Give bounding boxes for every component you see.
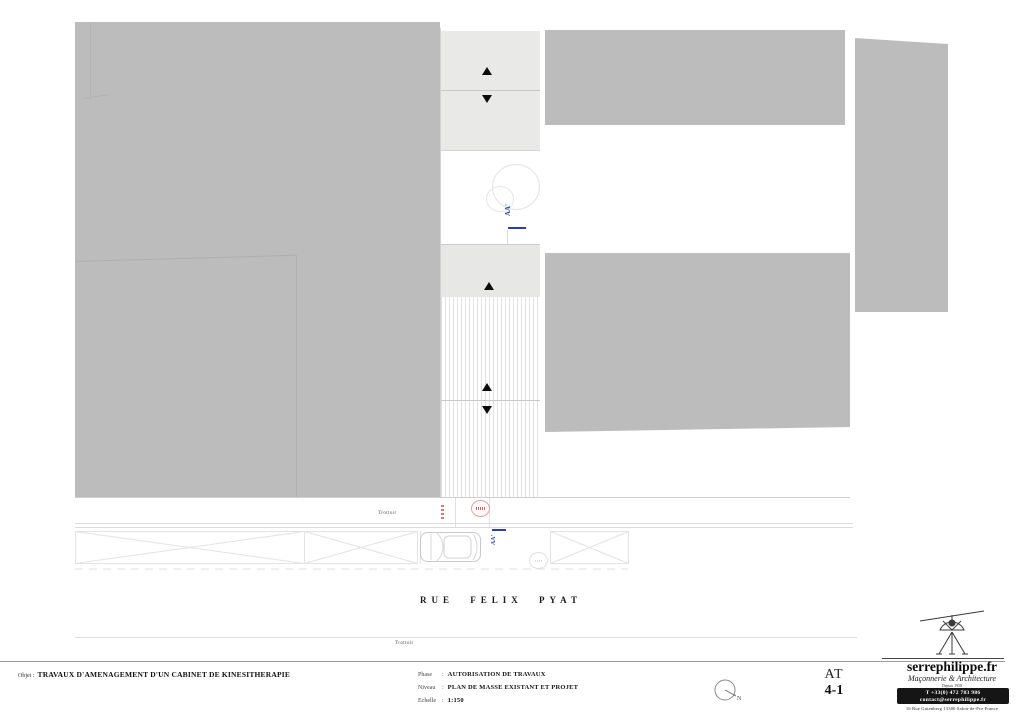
building-mass-left [75,22,440,498]
building-mass-right-bottom [545,253,850,432]
north-label: N [737,696,742,702]
building-mass-right-column [855,38,948,312]
niveau-label: Niveau [418,685,442,691]
niveau-row: Niveau : PLAN DE MASSE EXISTANT ET PROJE… [418,684,578,691]
brand-phone: T +33(0) 472 783 986 [926,690,981,696]
titleblock-separator-line [0,661,1005,662]
slope-arrow-down-icon [482,95,492,103]
phase-value: AUTORISATION DE TRAVAUX [448,671,546,678]
objet-value: TRAVAUX D'AMENAGEMENT D'UN CABINET DE KI… [38,670,291,679]
drawing-sheet: AA' Trottoir [0,0,1024,723]
roof-panel-1 [441,31,540,91]
brand-website: serrephilippe.fr [872,659,1024,675]
phase-colon: : [442,672,444,678]
slope-arrow-up-icon [482,383,492,391]
car-icon [421,533,481,562]
sheet-number: 4-1 [818,683,850,699]
section-cut-line [492,529,506,531]
phase-label: Phase [418,672,442,678]
yard-divider-line [441,400,540,401]
section-marker-label: AA' [491,532,497,548]
survey-point [529,552,548,569]
theodolite-logo-icon [912,606,992,658]
objet-label: Objet : [18,673,35,679]
building-mass-right-top [545,30,845,125]
phase-row: Phase : AUTORISATION DE TRAVAUX [418,671,546,678]
survey-point-red [471,500,490,517]
parcel-line [83,94,109,99]
section-marker-label: AA' [504,202,512,218]
sheet-code: AT [818,667,850,683]
sidewalk-label: Trottoir [395,641,414,646]
niveau-colon: : [442,685,444,691]
sidewalk-edge-line [75,637,857,638]
plan-edge-line [75,497,850,498]
parcel-line [75,255,297,262]
street-parking-drawing [75,528,635,574]
parcel-line [90,22,91,100]
section-cut-line [508,227,526,229]
sidewalk-edge-line [75,523,853,524]
echelle-row: Echelle : 1:150 [418,697,464,704]
north-arrow-icon: N [712,679,746,707]
survey-point-value [476,507,485,510]
echelle-value: 1:150 [448,697,464,704]
brand-address: 16 Rue Gutenberg 13300 Salon-de-Pce Fran… [872,706,1024,711]
slope-arrow-down-icon [482,406,492,414]
brand-contact-bar: T +33(0) 472 783 986 contact@serrephilip… [897,688,1009,704]
niveau-value: PLAN DE MASSE EXISTANT ET PROJET [448,684,578,691]
level-annotation-red [441,503,444,519]
parcel-line [296,256,297,498]
survey-point-value [535,560,543,562]
echelle-colon: : [442,698,444,704]
street-name-label: RUE FELIX PYAT [420,595,582,605]
slope-arrow-up-icon [482,67,492,75]
hatched-yard [441,297,540,498]
brand-tagline: Maçonnerie & Architecture [872,674,1024,683]
sidewalk-label: Trottoir [378,511,397,516]
objet-row: Objet : TRAVAUX D'AMENAGEMENT D'UN CABIN… [18,670,290,679]
slope-arrow-up-icon [484,282,494,290]
brand-email: contact@serrephilippe.fr [920,697,986,703]
echelle-label: Echelle [418,698,442,704]
